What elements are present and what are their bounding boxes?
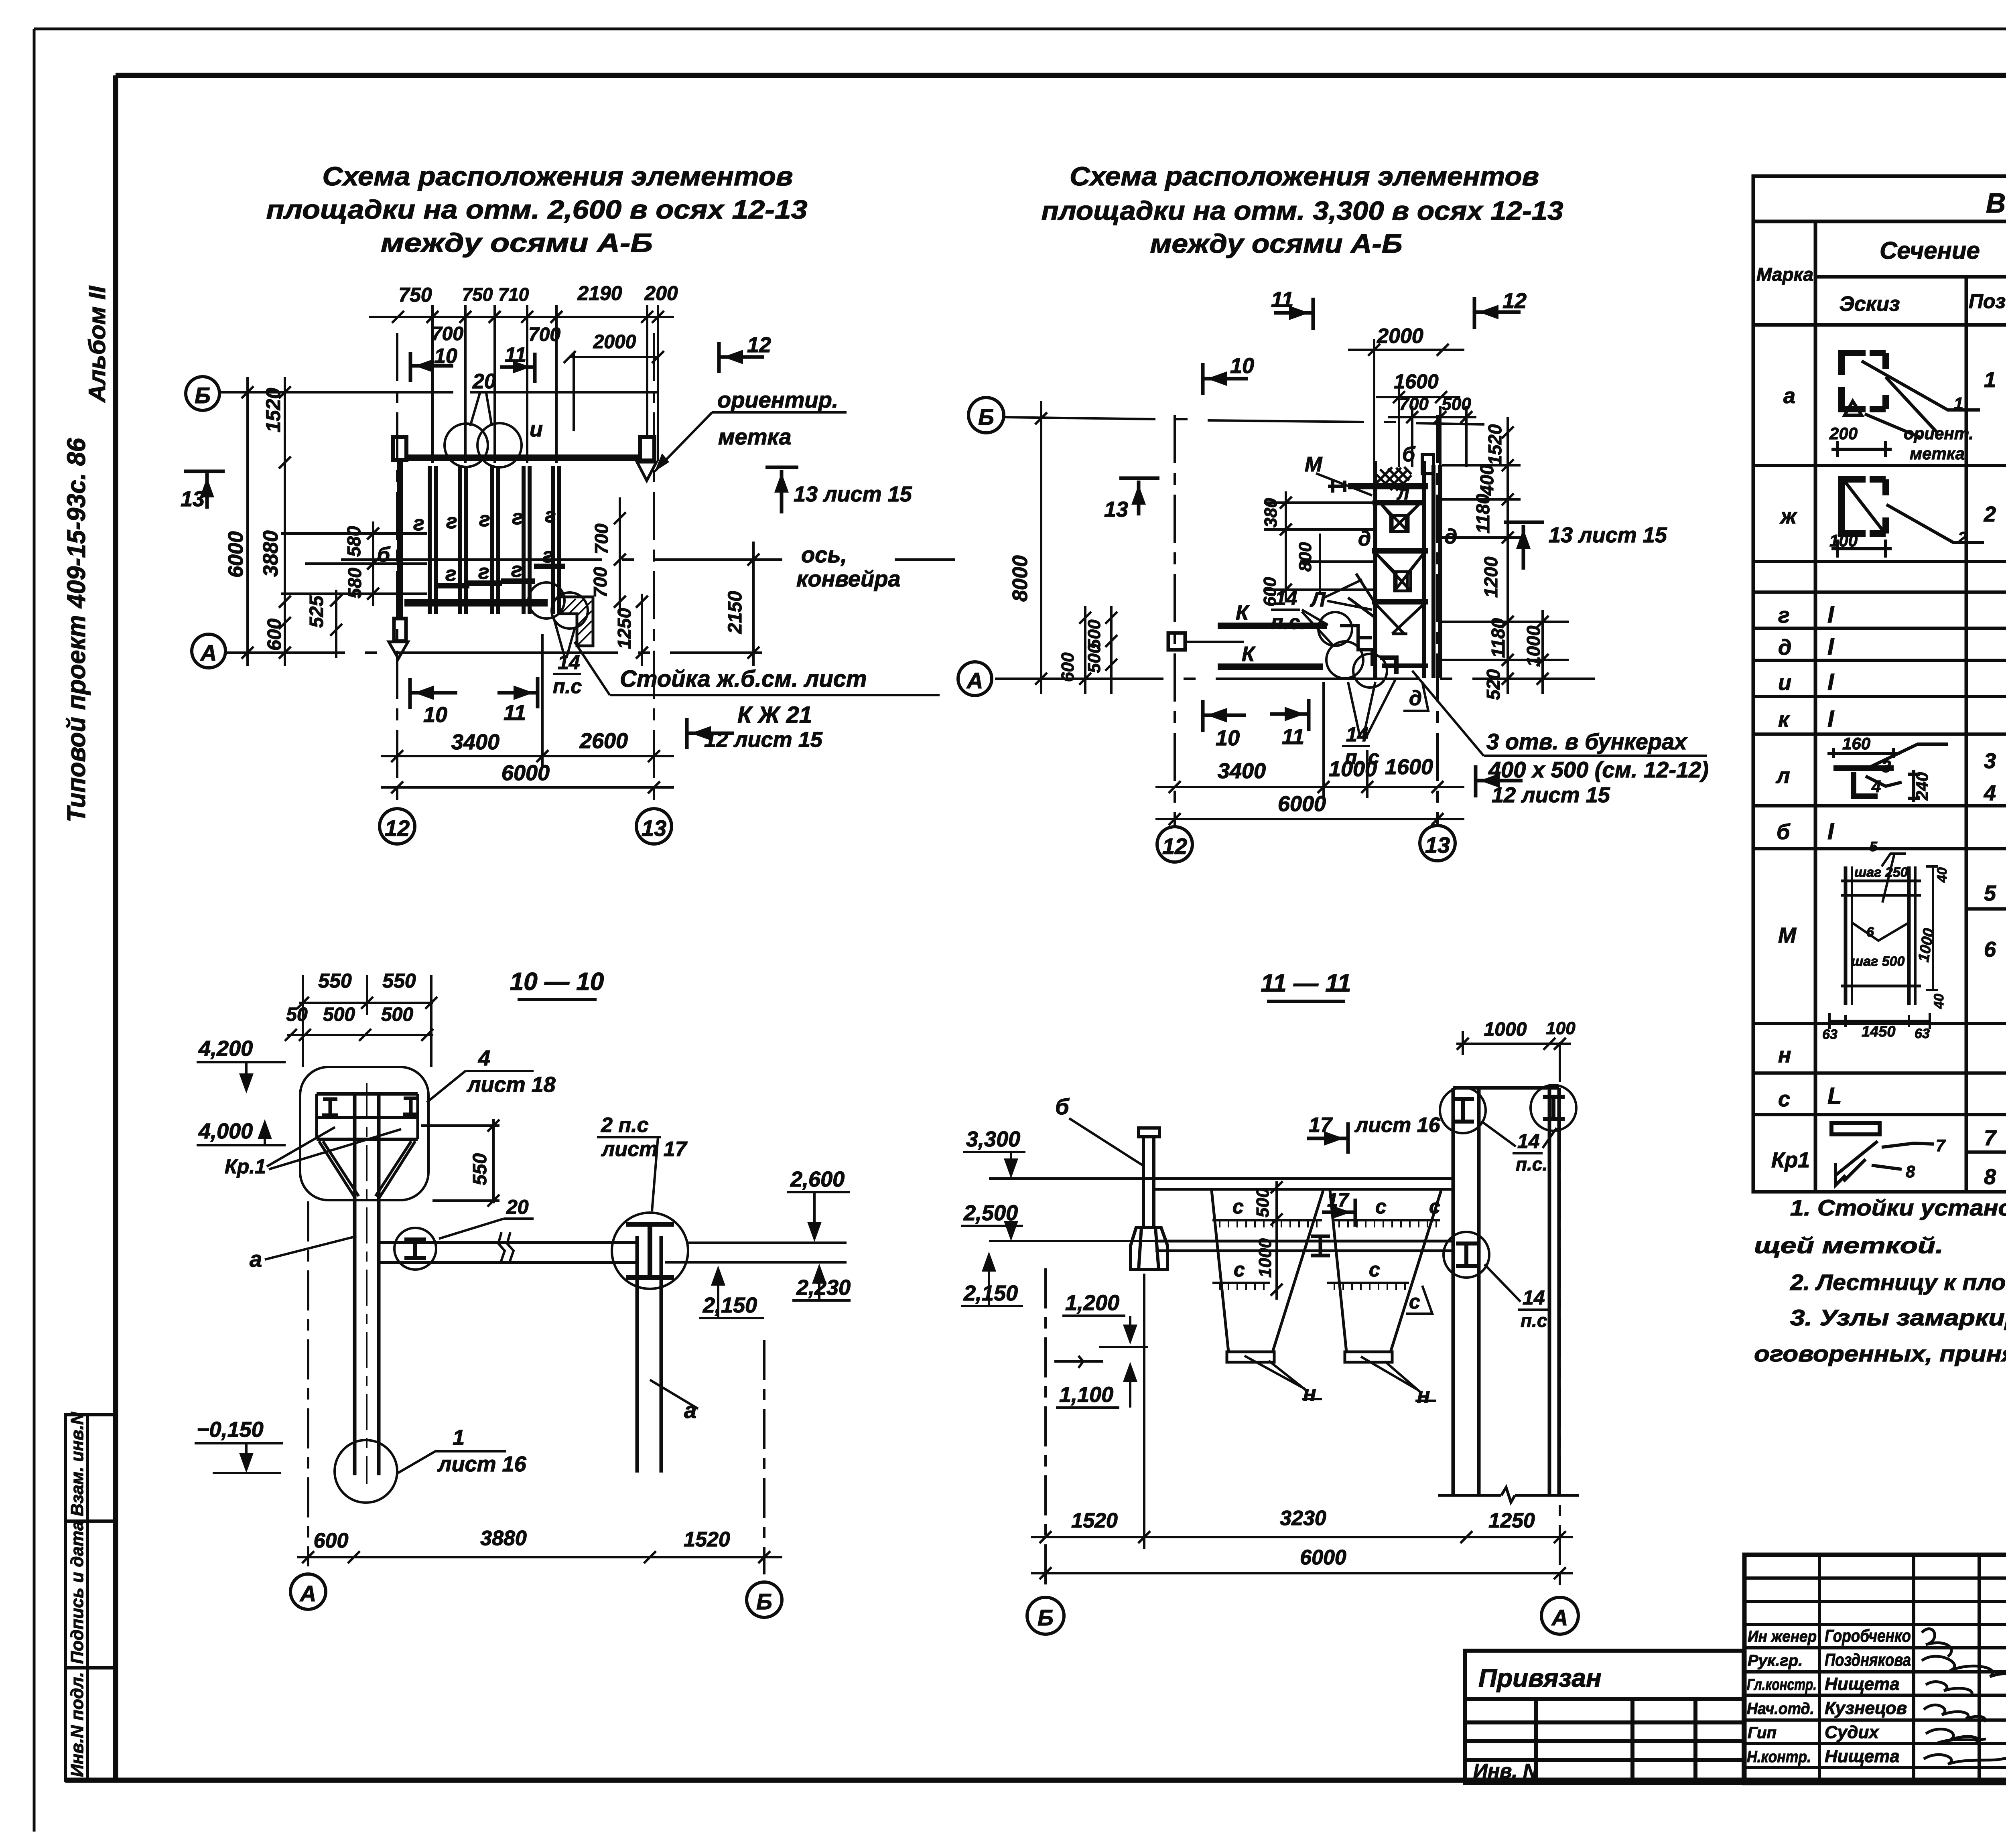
svg-text:и: и bbox=[1778, 671, 1791, 695]
svg-text:площадки на отм. 2,600 в: площадки на отм. 2,600 в осях 12-13 bbox=[266, 195, 808, 224]
svg-text:2000: 2000 bbox=[593, 331, 636, 353]
svg-text:шаг 500: шаг 500 bbox=[1851, 954, 1905, 969]
svg-text:1. Стойки установить в соо: 1. Стойки установить в соответствии с ор… bbox=[1790, 1195, 2006, 1220]
svg-text:12: 12 bbox=[1162, 834, 1187, 859]
svg-text:12: 12 bbox=[1502, 289, 1527, 313]
svg-text:1520: 1520 bbox=[1484, 424, 1505, 465]
svg-text:5: 5 bbox=[1984, 881, 1996, 905]
svg-text:Стойка ж.б.см. лист: Стойка ж.б.см. лист bbox=[620, 666, 867, 692]
svg-text:1250: 1250 bbox=[1488, 1509, 1535, 1532]
svg-text:I: I bbox=[1827, 669, 1835, 695]
svg-text:200: 200 bbox=[644, 282, 678, 304]
svg-text:Взам. инв.N: Взам. инв.N bbox=[67, 1412, 87, 1516]
svg-text:2190: 2190 bbox=[577, 282, 622, 304]
svg-text:Альбом II: Альбом II bbox=[84, 285, 110, 403]
svg-text:с: с bbox=[1375, 1195, 1387, 1218]
svg-text:1520: 1520 bbox=[684, 1528, 730, 1551]
svg-text:Типовой проект 409-15-93: Типовой проект 409-15-93с. 86 bbox=[62, 438, 91, 822]
svg-text:1200: 1200 bbox=[1480, 556, 1501, 598]
svg-text:5: 5 bbox=[1870, 839, 1878, 854]
svg-text:13 лист 15: 13 лист 15 bbox=[794, 482, 912, 506]
svg-text:1,200: 1,200 bbox=[1065, 1291, 1119, 1315]
svg-text:40: 40 bbox=[1931, 994, 1947, 1009]
svg-text:1180: 1180 bbox=[1488, 618, 1509, 658]
svg-text:700: 700 bbox=[431, 323, 463, 345]
svg-text:3: 3 bbox=[1882, 757, 1891, 776]
svg-text:1000: 1000 bbox=[1329, 757, 1377, 781]
svg-text:4,000: 4,000 bbox=[198, 1119, 253, 1143]
svg-text:6: 6 bbox=[1984, 937, 1996, 962]
svg-text:г: г bbox=[479, 508, 490, 531]
svg-text:п.с.: п.с. bbox=[1516, 1154, 1547, 1175]
svg-text:160: 160 bbox=[1842, 734, 1870, 753]
svg-text:Эскиз: Эскиз bbox=[1840, 292, 1900, 316]
svg-text:г: г bbox=[478, 560, 489, 584]
svg-text:13: 13 bbox=[181, 487, 205, 511]
svg-text:63: 63 bbox=[1915, 1026, 1930, 1041]
svg-text:I: I bbox=[1827, 818, 1835, 844]
svg-text:550: 550 bbox=[469, 1153, 491, 1185]
svg-text:д: д bbox=[1409, 687, 1422, 710]
svg-text:10: 10 bbox=[1230, 354, 1254, 378]
svg-text:3. Узлы замаркированные на: 3. Узлы замаркированные на данном листе,… bbox=[1790, 1305, 2006, 1330]
svg-text:800: 800 bbox=[1295, 542, 1315, 572]
svg-text:520: 520 bbox=[1483, 669, 1504, 700]
svg-text:метка: метка bbox=[1910, 444, 1965, 463]
svg-text:между осями А-Б: между осями А-Б bbox=[1150, 229, 1403, 258]
svg-text:К Ж 21: К Ж 21 bbox=[737, 702, 812, 728]
svg-text:2600: 2600 bbox=[579, 729, 628, 753]
svg-text:с: с bbox=[1232, 1195, 1244, 1218]
svg-text:400: 400 bbox=[1476, 465, 1497, 496]
svg-text:400 х 500 (см. 12-12): 400 х 500 (см. 12-12) bbox=[1488, 757, 1709, 782]
svg-text:200: 200 bbox=[1829, 424, 1858, 443]
svg-text:Б: Б bbox=[756, 1589, 772, 1614]
svg-text:Нищета: Нищета bbox=[1825, 1674, 1900, 1694]
svg-text:ось,: ось, bbox=[801, 542, 847, 567]
svg-text:12 лист 15: 12 лист 15 bbox=[704, 728, 823, 752]
svg-text:лист 17: лист 17 bbox=[601, 1138, 688, 1161]
svg-text:Схема расположения элемент: Схема расположения элементов bbox=[1070, 161, 1539, 191]
svg-text:580: 580 bbox=[343, 526, 364, 557]
svg-text:с: с bbox=[1778, 1087, 1790, 1111]
svg-text:Гип: Гип bbox=[1748, 1724, 1777, 1742]
svg-text:700: 700 bbox=[1399, 394, 1429, 414]
svg-text:с: с bbox=[1429, 1195, 1440, 1218]
svg-text:К: К bbox=[1242, 643, 1256, 666]
svg-text:л: л bbox=[1775, 764, 1790, 788]
svg-text:6: 6 bbox=[1866, 925, 1874, 940]
svg-text:Кузнецов: Кузнецов bbox=[1825, 1698, 1907, 1718]
svg-text:Гл.констр.: Гл.констр. bbox=[1747, 1676, 1817, 1694]
svg-text:710: 710 bbox=[498, 284, 529, 305]
svg-text:Поз: Поз bbox=[1969, 290, 2006, 312]
svg-text:11 — 11: 11 — 11 bbox=[1261, 970, 1351, 997]
svg-text:50: 50 bbox=[286, 1004, 308, 1025]
svg-text:700: 700 bbox=[591, 523, 612, 554]
svg-text:2150: 2150 bbox=[725, 591, 746, 634]
svg-text:Марка: Марка bbox=[1756, 264, 1813, 285]
svg-text:2,150: 2,150 bbox=[963, 1281, 1018, 1305]
svg-text:6000: 6000 bbox=[1300, 1546, 1346, 1569]
svg-text:580: 580 bbox=[344, 568, 365, 598]
svg-text:л: л bbox=[1397, 483, 1409, 504]
svg-text:8: 8 bbox=[1906, 1162, 1915, 1181]
svg-text:Горобченко: Горобченко bbox=[1825, 1626, 1911, 1646]
svg-text:А: А bbox=[1551, 1605, 1568, 1630]
svg-text:Привязан: Привязан bbox=[1478, 1663, 1602, 1692]
svg-text:оговоренных, приняты по с: оговоренных, приняты по серии 2,440-1 вы… bbox=[1754, 1341, 2006, 1366]
svg-text:4,200: 4,200 bbox=[198, 1037, 253, 1061]
svg-text:10 — 10: 10 — 10 bbox=[510, 968, 604, 996]
svg-text:Л: Л bbox=[1310, 588, 1326, 611]
svg-text:2. Лестницу к площадке см.: 2. Лестницу к площадке см. лист 20 bbox=[1790, 1270, 2006, 1295]
svg-text:г: г bbox=[413, 512, 424, 535]
svg-text:13: 13 bbox=[1425, 832, 1450, 858]
svg-text:20: 20 bbox=[472, 370, 496, 393]
svg-text:д: д bbox=[1778, 635, 1791, 659]
svg-text:г: г bbox=[512, 506, 523, 529]
svg-text:3880: 3880 bbox=[480, 1527, 527, 1550]
svg-text:и: и bbox=[530, 417, 543, 441]
svg-text:500: 500 bbox=[381, 1004, 413, 1025]
svg-text:1520: 1520 bbox=[262, 388, 284, 432]
svg-text:10: 10 bbox=[423, 703, 447, 727]
svg-text:1: 1 bbox=[1984, 368, 1996, 392]
svg-text:Схема расположения элементо: Схема расположения элементов bbox=[323, 161, 793, 191]
svg-text:3: 3 bbox=[1984, 749, 1996, 773]
svg-text:700: 700 bbox=[528, 324, 560, 345]
svg-text:750: 750 bbox=[398, 284, 432, 306]
svg-text:Б: Б bbox=[1038, 1605, 1054, 1630]
svg-text:63: 63 bbox=[1822, 1027, 1837, 1042]
svg-text:1180: 1180 bbox=[1472, 494, 1493, 534]
svg-text:6000: 6000 bbox=[501, 761, 550, 785]
svg-text:К: К bbox=[1236, 601, 1250, 625]
svg-text:г: г bbox=[511, 558, 522, 582]
svg-text:площадки на отм. 3,300 в: площадки на отм. 3,300 в осях 12-13 bbox=[1042, 196, 1563, 225]
svg-text:2 п.с: 2 п.с bbox=[601, 1114, 649, 1137]
svg-text:100: 100 bbox=[1829, 531, 1858, 550]
svg-text:Ин женер: Ин женер bbox=[1748, 1628, 1817, 1645]
svg-text:М: М bbox=[1778, 923, 1797, 947]
svg-text:шаг 250: шаг 250 bbox=[1854, 865, 1908, 880]
svg-text:2: 2 bbox=[1984, 502, 1996, 526]
svg-text:600: 600 bbox=[314, 1529, 349, 1552]
svg-text:А: А bbox=[966, 668, 983, 693]
svg-text:550: 550 bbox=[382, 970, 416, 992]
svg-text:3,300: 3,300 bbox=[966, 1127, 1020, 1151]
svg-text:конвейра: конвейра bbox=[796, 566, 901, 591]
svg-text:11: 11 bbox=[505, 343, 526, 367]
svg-text:I: I bbox=[1827, 706, 1835, 732]
svg-text:17: 17 bbox=[1309, 1114, 1333, 1137]
svg-text:40: 40 bbox=[1935, 867, 1950, 883]
svg-text:1600: 1600 bbox=[1394, 370, 1438, 393]
svg-text:13 лист 15: 13 лист 15 bbox=[1549, 523, 1667, 547]
svg-text:Рук.гр.: Рук.гр. bbox=[1748, 1652, 1803, 1669]
svg-text:100: 100 bbox=[1546, 1018, 1576, 1038]
svg-text:6000: 6000 bbox=[1278, 792, 1326, 816]
svg-text:I: I bbox=[1827, 634, 1835, 660]
svg-text:I: I bbox=[1827, 602, 1835, 628]
svg-text:н: н bbox=[1417, 1383, 1430, 1407]
svg-text:4: 4 bbox=[478, 1046, 490, 1070]
svg-text:Б: Б bbox=[978, 404, 994, 430]
svg-text:а: а bbox=[250, 1246, 262, 1272]
svg-text:б: б bbox=[1777, 820, 1791, 844]
svg-text:3230: 3230 bbox=[1280, 1507, 1326, 1530]
svg-text:20: 20 bbox=[506, 1196, 529, 1218]
svg-text:6000: 6000 bbox=[224, 531, 248, 578]
svg-text:с: с bbox=[1234, 1258, 1245, 1281]
svg-text:г: г bbox=[446, 510, 457, 533]
svg-text:А: А bbox=[299, 1581, 316, 1606]
svg-text:3400: 3400 bbox=[451, 730, 499, 754]
svg-text:н: н bbox=[1303, 1381, 1316, 1406]
svg-text:10: 10 bbox=[1216, 726, 1240, 750]
svg-text:Нач.отд.: Нач.отд. bbox=[1747, 1700, 1814, 1718]
svg-text:8: 8 bbox=[1984, 1165, 1996, 1189]
svg-text:Нищета: Нищета bbox=[1825, 1747, 1900, 1766]
svg-text:с: с bbox=[1369, 1258, 1380, 1281]
svg-text:М: М bbox=[1305, 453, 1323, 476]
svg-text:г: г bbox=[445, 562, 457, 586]
svg-text:Б: Б bbox=[195, 383, 211, 408]
svg-text:14: 14 bbox=[1517, 1130, 1540, 1152]
svg-text:600: 600 bbox=[1260, 577, 1280, 607]
svg-text:380: 380 bbox=[1261, 498, 1281, 527]
svg-text:3400: 3400 bbox=[1218, 759, 1266, 783]
svg-text:2,600: 2,600 bbox=[790, 1167, 845, 1191]
svg-text:3 отв. в бункерах: 3 отв. в бункерах bbox=[1486, 729, 1688, 754]
svg-text:лист 16: лист 16 bbox=[437, 1452, 527, 1476]
svg-text:−0,150: −0,150 bbox=[197, 1418, 264, 1442]
svg-text:Позднякова: Позднякова bbox=[1825, 1650, 1911, 1670]
svg-text:L: L bbox=[1827, 1083, 1842, 1109]
svg-text:1000: 1000 bbox=[1484, 1019, 1527, 1040]
svg-text:500: 500 bbox=[1084, 643, 1104, 673]
svg-text:лист 18: лист 18 bbox=[466, 1073, 556, 1097]
svg-text:п.с.: п.с. bbox=[1271, 611, 1306, 633]
svg-text:2000: 2000 bbox=[1377, 325, 1423, 348]
svg-text:между осями А-Б: между осями А-Б bbox=[381, 228, 653, 258]
svg-text:Подпись и дата: Подпись и дата bbox=[67, 1521, 87, 1664]
svg-text:щей меткой.: щей меткой. bbox=[1754, 1233, 1943, 1258]
svg-text:б: б bbox=[1402, 443, 1416, 466]
svg-text:11: 11 bbox=[1271, 288, 1293, 312]
svg-text:А: А bbox=[200, 640, 217, 665]
svg-text:Судих: Судих bbox=[1825, 1722, 1879, 1742]
svg-text:б: б bbox=[1055, 1094, 1070, 1119]
svg-text:Инв.N подл.: Инв.N подл. bbox=[67, 1672, 87, 1777]
svg-text:п.с: п.с bbox=[553, 675, 582, 698]
svg-text:1000: 1000 bbox=[1255, 1238, 1275, 1278]
svg-text:240: 240 bbox=[1913, 772, 1931, 801]
svg-text:Кр1: Кр1 bbox=[1771, 1148, 1810, 1172]
svg-text:700: 700 bbox=[590, 567, 611, 598]
svg-text:1: 1 bbox=[453, 1426, 465, 1450]
svg-text:7: 7 bbox=[1936, 1136, 1946, 1155]
svg-text:750: 750 bbox=[462, 284, 493, 305]
svg-text:г: г bbox=[545, 504, 556, 527]
svg-text:1,100: 1,100 bbox=[1059, 1383, 1113, 1407]
svg-text:17: 17 bbox=[1327, 1190, 1350, 1211]
svg-text:550: 550 bbox=[318, 970, 352, 992]
svg-text:Кр.1: Кр.1 bbox=[225, 1155, 266, 1178]
svg-text:4: 4 bbox=[1871, 777, 1881, 796]
svg-text:12: 12 bbox=[747, 333, 771, 357]
svg-text:12 лист 15: 12 лист 15 bbox=[1492, 783, 1610, 807]
svg-text:Ведомость элементов: Ведомость элементов bbox=[1986, 187, 2006, 219]
svg-text:7: 7 bbox=[1984, 1126, 1997, 1150]
svg-text:1520: 1520 bbox=[1071, 1509, 1118, 1532]
svg-text:2,150: 2,150 bbox=[703, 1293, 757, 1317]
svg-text:метка: метка bbox=[718, 424, 792, 449]
svg-text:4: 4 bbox=[1984, 781, 1996, 805]
svg-text:1000: 1000 bbox=[1523, 625, 1544, 667]
svg-text:с: с bbox=[1409, 1290, 1420, 1313]
svg-text:14: 14 bbox=[1523, 1286, 1545, 1309]
svg-text:500: 500 bbox=[1253, 1188, 1273, 1217]
svg-text:500: 500 bbox=[323, 1004, 355, 1025]
svg-text:п.с: п.с bbox=[1521, 1310, 1547, 1331]
svg-text:г: г bbox=[1778, 603, 1790, 627]
svg-text:8000: 8000 bbox=[1009, 555, 1032, 602]
svg-text:Н.контр.: Н.контр. bbox=[1747, 1748, 1811, 1766]
svg-text:12: 12 bbox=[385, 815, 410, 841]
svg-text:1450: 1450 bbox=[1862, 1023, 1896, 1040]
svg-text:2: 2 bbox=[1957, 528, 1967, 547]
svg-text:лист 16: лист 16 bbox=[1354, 1114, 1441, 1137]
svg-text:ориент.: ориент. bbox=[1904, 424, 1974, 443]
svg-text:600: 600 bbox=[1058, 652, 1078, 682]
svg-text:1600: 1600 bbox=[1385, 755, 1433, 779]
svg-text:1250: 1250 bbox=[614, 608, 635, 649]
svg-text:а: а bbox=[1783, 384, 1795, 408]
svg-text:13: 13 bbox=[642, 815, 666, 841]
svg-text:Инв. N: Инв. N bbox=[1473, 1760, 1538, 1782]
svg-text:14: 14 bbox=[558, 651, 580, 673]
svg-text:н: н bbox=[1778, 1043, 1791, 1067]
svg-text:600: 600 bbox=[264, 619, 285, 651]
svg-text:Сечение: Сечение bbox=[1880, 237, 1980, 264]
svg-text:525: 525 bbox=[306, 595, 327, 628]
svg-text:3880: 3880 bbox=[259, 530, 282, 577]
svg-text:1: 1 bbox=[1954, 394, 1963, 413]
svg-text:ж: ж bbox=[1779, 504, 1798, 528]
svg-text:13: 13 bbox=[1104, 497, 1128, 521]
svg-text:к: к bbox=[1778, 708, 1790, 732]
svg-text:10: 10 bbox=[434, 345, 457, 368]
svg-text:500: 500 bbox=[1442, 394, 1471, 414]
svg-text:11: 11 bbox=[1282, 725, 1304, 749]
svg-text:ориентир.: ориентир. bbox=[717, 387, 838, 412]
svg-text:11: 11 bbox=[504, 701, 526, 725]
